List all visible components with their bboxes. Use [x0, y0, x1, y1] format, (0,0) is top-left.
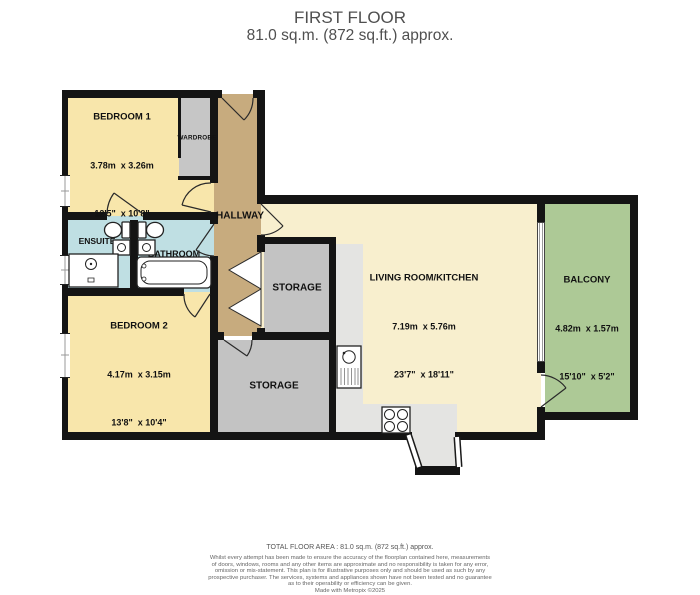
- bedroom1-window: [60, 175, 70, 207]
- total-floor-area-text: TOTAL FLOOR AREA : 81.0 sq.m. (872 sq.ft…: [0, 544, 700, 551]
- credit-line: Made with Metropix ©2025: [0, 588, 700, 595]
- wall-bedroom1-bottom-right: [143, 212, 218, 220]
- wall-hallway-right-upper: [257, 92, 265, 204]
- wall-top-living-balcony: [258, 195, 638, 204]
- wall-wardrobe-bottom: [178, 176, 215, 180]
- bedroom1-imperial: 12'5" x 10'8": [90, 209, 154, 220]
- bedroom2-window: [60, 333, 70, 378]
- storage-upper-label: STORAGE: [272, 283, 321, 294]
- bedroom2-metric: 4.17m x 3.15m: [107, 369, 171, 380]
- wall-bottom-right: [455, 432, 545, 440]
- balcony-metric: 4.82m x 1.57m: [555, 323, 619, 334]
- wall-bedroom2-right: [210, 297, 218, 440]
- wall-balcony-left-mid: [537, 362, 545, 373]
- storage-lower-label: STORAGE: [249, 381, 298, 392]
- balcony-window: [537, 222, 545, 362]
- wall-storage-right: [329, 237, 336, 440]
- bedroom2-imperial: 13'8" x 10'4": [107, 418, 171, 429]
- balcony-label: BALCONY 4.82m x 1.57m 15'10" x 5'2": [555, 237, 619, 402]
- bathroom-label: BATHROOM: [148, 249, 200, 259]
- living-room-imperial: 23'7" x 18'11": [370, 370, 479, 381]
- living-room-metric: 7.19m x 5.76m: [370, 321, 479, 332]
- disclaimer-text: Whilst every attempt has been made to en…: [0, 555, 700, 595]
- bedroom1-metric: 3.78m x 3.26m: [90, 160, 154, 171]
- wall-storage-upper-top: [257, 237, 336, 244]
- disclaimer-line: of doors, windows, rooms and any other i…: [0, 562, 700, 569]
- page-subtitle: 81.0 sq.m. (872 sq.ft.) approx.: [0, 27, 700, 45]
- wall-storage-divider: [252, 332, 336, 340]
- wall-balcony-left-bottom: [537, 407, 545, 440]
- wall-balcony-bottom: [538, 412, 638, 420]
- floorplan-page: { "title": { "line1": "FIRST FLOOR", "li…: [0, 0, 700, 595]
- disclaimer-line: Whilst every attempt has been made to en…: [0, 555, 700, 562]
- ensuite-label: ENSUITE: [79, 236, 116, 246]
- wall-balcony-right: [630, 195, 638, 420]
- ensuite-window: [60, 255, 70, 285]
- wardrobe-label: WARDROBE: [177, 135, 216, 142]
- bedroom2-label: BEDROOM 2 4.17m x 3.15m 13'8" x 10'4": [107, 283, 171, 448]
- disclaimer-line: omission or mis-statement. This plan is …: [0, 568, 700, 575]
- balcony-imperial: 15'10" x 5'2": [555, 372, 619, 383]
- wall-bay-bottom: [415, 466, 460, 475]
- wall-bedroom1-right-lower: [210, 256, 218, 297]
- wall-balcony-left-top: [537, 195, 545, 223]
- bedroom2-name: BEDROOM 2: [107, 320, 171, 331]
- wall-wardrobe-left: [178, 97, 181, 158]
- disclaimer-line: prospective purchaser. The services, sys…: [0, 575, 700, 582]
- balcony-name: BALCONY: [555, 274, 619, 285]
- page-title: FIRST FLOOR: [0, 8, 700, 28]
- living-room-name: LIVING ROOM/KITCHEN: [370, 272, 479, 283]
- bedroom1-label: BEDROOM 1 3.78m x 3.26m 12'5" x 10'8": [90, 74, 154, 239]
- wall-hallway-bottom-left: [210, 332, 224, 340]
- hallway-label: HALLWAY: [216, 211, 264, 222]
- living-room-label: LIVING ROOM/KITCHEN 7.19m x 5.76m 23'7" …: [370, 235, 479, 400]
- bay-window-floor: [407, 432, 459, 468]
- bedroom1-name: BEDROOM 1: [90, 111, 154, 122]
